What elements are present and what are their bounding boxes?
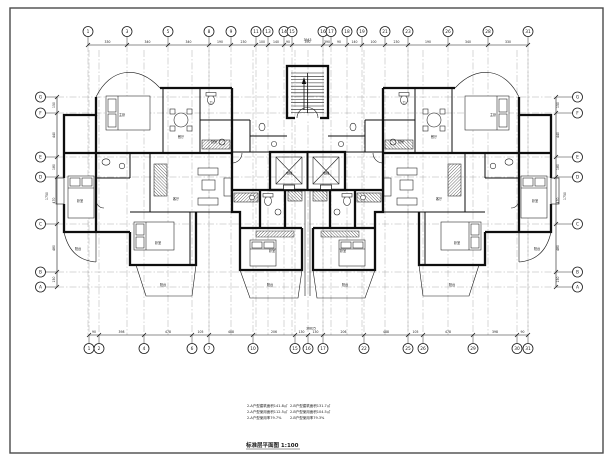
dining-table-icon	[170, 109, 192, 131]
grid-bubble-label: E	[576, 155, 579, 161]
annotation-line: 2-A户型建筑面积141.8㎡	[247, 403, 288, 408]
grid-bubble-label: A	[39, 285, 42, 291]
dimension-total: 36825	[306, 327, 316, 331]
annotation-line: 2-A户型使用率79.7%	[247, 415, 282, 420]
dimension-label: 180	[556, 164, 560, 170]
grid-bubble-label: 31	[525, 29, 531, 35]
room-label: 卧室	[340, 248, 346, 253]
grid-bubble-label: 15	[289, 29, 295, 35]
dimension-label: 190	[217, 40, 223, 44]
room-label: 卧室	[269, 248, 275, 253]
grid-bubble-label: E	[39, 155, 42, 161]
grid-bubble-label: 28	[485, 29, 491, 35]
dimension-label: 330	[105, 40, 111, 44]
dimension-label: 150	[52, 277, 56, 283]
grid-bubble-label: 4	[143, 346, 146, 352]
dimension-label: 130	[313, 330, 319, 334]
room-label: 主卧	[490, 112, 497, 117]
toilet-icon	[259, 123, 265, 131]
dimension-label: 478	[165, 330, 171, 334]
grid-bubble-label: 18	[344, 29, 350, 35]
grid-bubble-label: 7	[208, 346, 211, 352]
annotation-line: 2-B户型使用率79.3%	[290, 415, 325, 420]
grid-bubble-label: 2	[98, 346, 101, 352]
grid-bubble-label: 14	[281, 29, 287, 35]
dimension-label: 150	[556, 277, 560, 283]
dimension-label: 470	[52, 198, 56, 204]
dimension-total: 1750	[563, 192, 567, 200]
grid-bubble-label: C	[576, 222, 579, 228]
room-label: 客厅	[173, 196, 180, 201]
grid-bubble-label: 21	[382, 29, 388, 35]
grid-bubble-label: 6	[191, 346, 194, 352]
grid-bubble-label: A	[576, 285, 579, 291]
dimension-label: 340	[465, 40, 471, 44]
dimension-label: 140	[352, 40, 358, 44]
dimension-label: 340	[145, 40, 151, 44]
room-label: 电梯	[286, 171, 293, 176]
core	[270, 66, 345, 296]
dimension-label: 480	[556, 245, 560, 251]
annotation-line: 2-A户型使用面积112.5㎡	[247, 409, 288, 414]
stair-door-opening	[295, 116, 320, 121]
annotation-layer: 1358911131415161718192123262831330340340…	[36, 27, 583, 450]
dimension-label: 100	[259, 40, 265, 44]
right-wing	[310, 72, 559, 298]
room-label: 客厅	[436, 196, 443, 201]
dimension-label: 488	[228, 330, 234, 334]
grid-bubble-label: 11	[253, 29, 259, 35]
floor-plan: 1358911131415161718192123262831330340340…	[0, 0, 610, 465]
grid-bubble-label: 16	[320, 29, 326, 35]
grid-bubble-label: 31	[525, 346, 531, 352]
dimension-label: 230	[394, 40, 400, 44]
grid-bubble-label: 3	[126, 29, 129, 35]
grid-bubble-label: 16	[305, 346, 311, 352]
room-label: 阳台	[267, 282, 273, 287]
dimension-label: 488	[383, 330, 389, 334]
dimension-label: 480	[52, 245, 56, 251]
bed-icon	[250, 240, 276, 266]
grid-bubble-label: 17	[328, 29, 334, 35]
grid-bubble-label: 8	[208, 29, 211, 35]
grid-bubble-label: 15	[292, 346, 298, 352]
grid-bubble-label: B	[39, 270, 42, 276]
dimension-label: 206	[341, 330, 347, 334]
grid-bubble-label: 26	[445, 29, 451, 35]
room-label: 阳台	[160, 282, 166, 287]
dimension-label: 140	[273, 40, 279, 44]
dimension-total: 3943	[304, 38, 312, 42]
grid-bubble-label: 22	[361, 346, 367, 352]
room-label: 阳台	[342, 282, 348, 287]
dimension-total: 1750	[45, 192, 49, 200]
drawing-caption: 标准层平面图 1:100	[245, 441, 299, 449]
room-label: 阳台	[449, 282, 455, 287]
tv-cabinet-icon	[154, 164, 167, 196]
grid-bubble-label: 5	[167, 29, 170, 35]
railing-hatch	[256, 231, 294, 237]
room-label: 阳台	[534, 246, 540, 251]
dimension-label: 150	[556, 102, 560, 108]
grid-bubble-label: 17	[320, 346, 326, 352]
dimension-label: 90	[286, 40, 290, 44]
door-arc	[96, 200, 104, 208]
grid-bubble-label: C	[39, 222, 42, 228]
dimension-label: 150	[52, 102, 56, 108]
grid-bubble-label: 1	[87, 29, 90, 35]
room-label: 餐厅	[431, 134, 438, 139]
stair-up-arrow	[302, 77, 306, 110]
toilet-icon	[263, 194, 281, 216]
dimension-label: 230	[241, 40, 247, 44]
grid-bubble-label: 26	[420, 346, 426, 352]
room-label: 主卧	[119, 112, 126, 117]
dimension-label: 330	[505, 40, 511, 44]
duct-hatch	[288, 191, 302, 201]
dimension-label: 478	[445, 330, 451, 334]
dimension-label: 440	[52, 132, 56, 138]
toilet-icon	[102, 159, 125, 169]
dimension-label: 206	[271, 330, 277, 334]
room-label: 厨房	[211, 139, 217, 144]
grid-bubble-label: G	[39, 95, 42, 101]
dimension-label: 390	[324, 40, 330, 44]
room-label: 厨房	[398, 139, 404, 144]
dimension-label: 90	[521, 330, 525, 334]
annotation-line: 2-B户型使用面积104.5㎡	[290, 409, 331, 414]
basin-icon	[271, 141, 276, 146]
dimension-label: 398	[492, 330, 498, 334]
room-label: 阳台	[75, 246, 81, 251]
dimension-label: 470	[556, 198, 560, 204]
dimension-label: 90	[337, 40, 341, 44]
room-label: 卧室	[155, 240, 161, 245]
grid-bubble-label: G	[576, 95, 579, 101]
grid-bubble-label: 9	[230, 29, 233, 35]
bed-icon	[134, 222, 174, 250]
grid-bubble-label: 1	[88, 346, 91, 352]
duct-hatch	[313, 191, 327, 201]
room-label: 卧室	[454, 240, 460, 245]
room-label: 电梯	[323, 171, 330, 176]
sofa-icon	[198, 168, 231, 205]
door-arc	[232, 153, 242, 163]
grid-bubble-label: 23	[405, 29, 411, 35]
dimension-label: 180	[52, 164, 56, 170]
room-label: 餐厅	[178, 134, 185, 139]
grid-bubble-label: 13	[265, 29, 271, 35]
dimension-label: 130	[299, 330, 305, 334]
grid-bubble-label: 19	[359, 29, 365, 35]
dimension-label: 340	[186, 40, 192, 44]
room-label: 卧室	[77, 198, 83, 203]
dimension-label: 440	[556, 132, 560, 138]
bed-icon	[68, 176, 94, 218]
grid-bubble-label: 25	[405, 346, 411, 352]
dimension-label: 398	[119, 330, 125, 334]
left-wing	[56, 72, 305, 298]
grid-bubble-label: 10	[250, 346, 256, 352]
dimension-label: 190	[425, 40, 431, 44]
bed-icon	[106, 96, 150, 130]
kitchen-counter-icon	[234, 193, 258, 202]
dimension-label: 105	[198, 330, 204, 334]
annotation-line: 2-B户型建筑面积131.7㎡	[290, 403, 331, 408]
grid-bubble-label: 30	[514, 346, 520, 352]
grid-bubble-label: B	[576, 270, 579, 276]
grid-bubble-label: 29	[470, 346, 476, 352]
furniture-layer	[68, 93, 281, 267]
dimension-label: 105	[413, 330, 419, 334]
center-spine	[305, 190, 310, 296]
room-label: 卧室	[532, 198, 538, 203]
dimension-label: 90	[92, 330, 96, 334]
dimension-label: 100	[371, 40, 377, 44]
